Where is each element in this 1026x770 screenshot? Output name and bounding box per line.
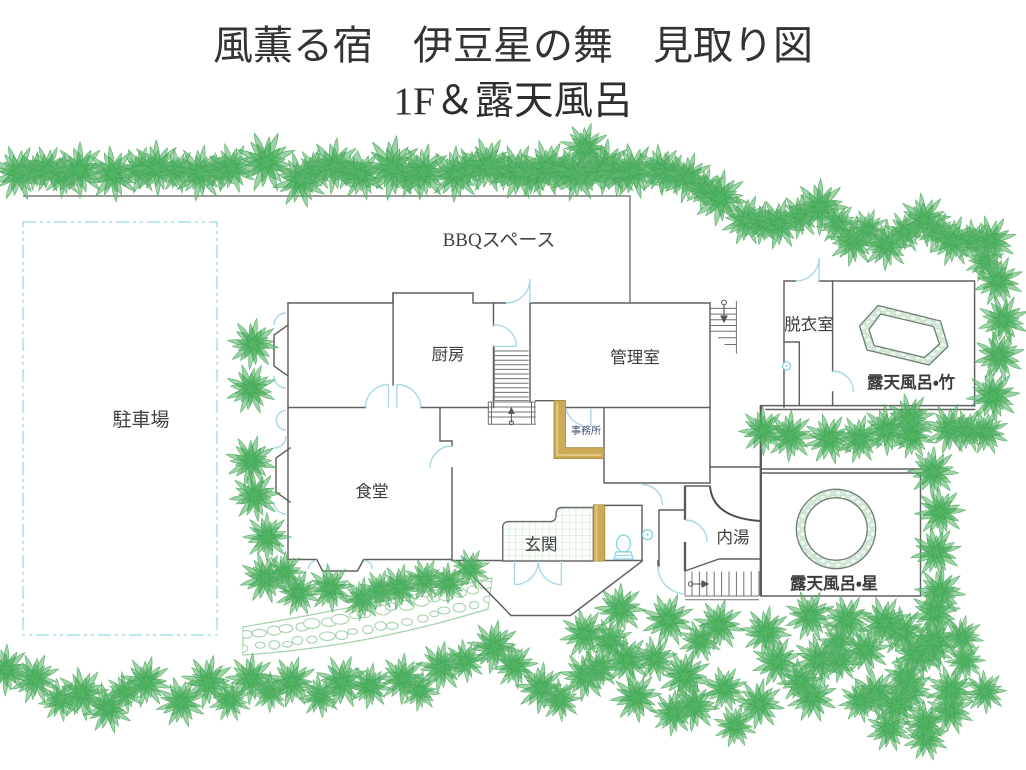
svg-text:1F＆露天風呂: 1F＆露天風呂	[393, 79, 632, 123]
svg-text:脱衣室: 脱衣室	[784, 315, 834, 334]
svg-text:管理室: 管理室	[610, 348, 660, 367]
svg-text:玄関: 玄関	[525, 535, 558, 554]
svg-text:露天風呂・竹: 露天風呂・竹	[867, 372, 956, 392]
svg-text:風薫る宿 伊豆星の舞 見取り図: 風薫る宿 伊豆星の舞 見取り図	[213, 23, 813, 68]
svg-text:厨房: 厨房	[432, 345, 465, 364]
svg-text:内湯: 内湯	[717, 528, 750, 547]
svg-text:駐車場: 駐車場	[112, 409, 169, 431]
svg-text:露天風呂・星: 露天風呂・星	[790, 574, 878, 593]
svg-text:食堂: 食堂	[356, 482, 389, 501]
svg-text:事務所: 事務所	[571, 424, 601, 437]
svg-text:BBQスペース: BBQスペース	[443, 230, 556, 251]
